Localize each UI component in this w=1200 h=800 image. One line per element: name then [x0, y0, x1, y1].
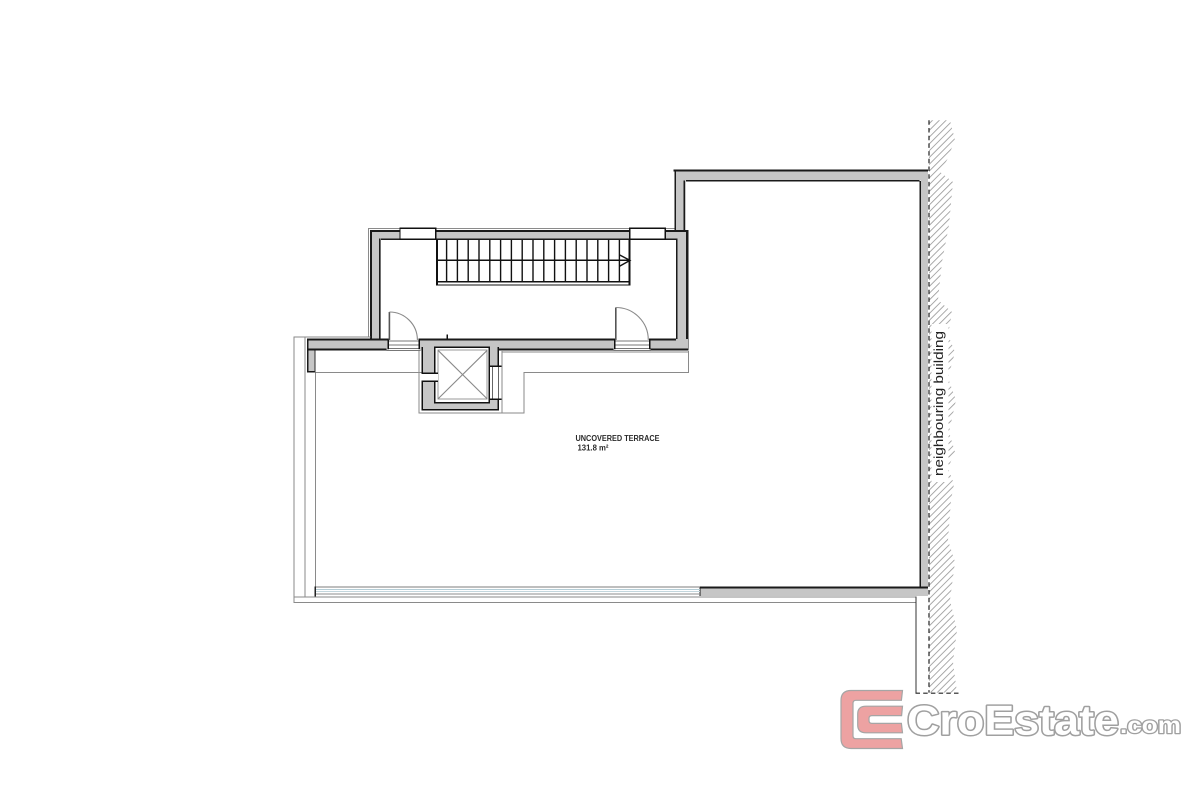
svg-text:UNCOVERED TERRACE: UNCOVERED TERRACE — [576, 434, 661, 443]
svg-text:131.8 m²: 131.8 m² — [578, 444, 609, 453]
svg-text:CroEstate: CroEstate — [907, 697, 1119, 744]
svg-text:.com: .com — [1120, 712, 1181, 738]
svg-text:neighbouring building: neighbouring building — [931, 331, 946, 476]
